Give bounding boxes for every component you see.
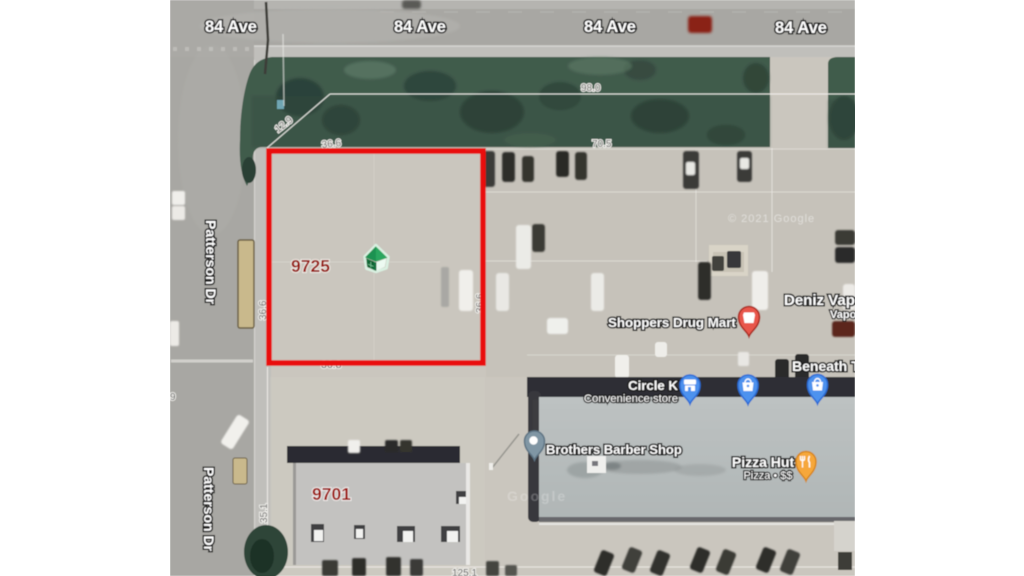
svg-text:Pizza Hut: Pizza Hut — [732, 454, 795, 470]
svg-text:Deniz Vape: Deniz Vape — [784, 292, 863, 309]
svg-text:Google: Google — [507, 488, 567, 504]
svg-text:98.0: 98.0 — [581, 83, 601, 94]
svg-text:Patterson Dr: Patterson Dr — [201, 467, 217, 552]
svg-text:35.1: 35.1 — [259, 503, 270, 523]
svg-text:9: 9 — [170, 392, 176, 403]
svg-text:125.1: 125.1 — [452, 568, 477, 576]
svg-text:70.5: 70.5 — [592, 139, 612, 150]
svg-text:84 Ave: 84 Ave — [584, 18, 636, 36]
svg-text:84 Ave: 84 Ave — [394, 18, 446, 36]
svg-text:84 Ave: 84 Ave — [205, 18, 257, 36]
svg-text:Convenience store: Convenience store — [584, 393, 678, 405]
svg-text:Patterson Dr: Patterson Dr — [203, 220, 219, 305]
svg-text:Pizza • $$: Pizza • $$ — [743, 470, 792, 482]
svg-text:9725: 9725 — [291, 256, 330, 276]
svg-text:© 2021 Google: © 2021 Google — [728, 213, 815, 225]
svg-text:Shoppers Drug Mart: Shoppers Drug Mart — [608, 315, 736, 330]
svg-text:Brothers Barber Shop: Brothers Barber Shop — [546, 442, 682, 457]
svg-text:9701: 9701 — [312, 484, 351, 504]
svg-text:84 Ave: 84 Ave — [775, 19, 827, 37]
svg-text:Circle K: Circle K — [628, 378, 678, 393]
